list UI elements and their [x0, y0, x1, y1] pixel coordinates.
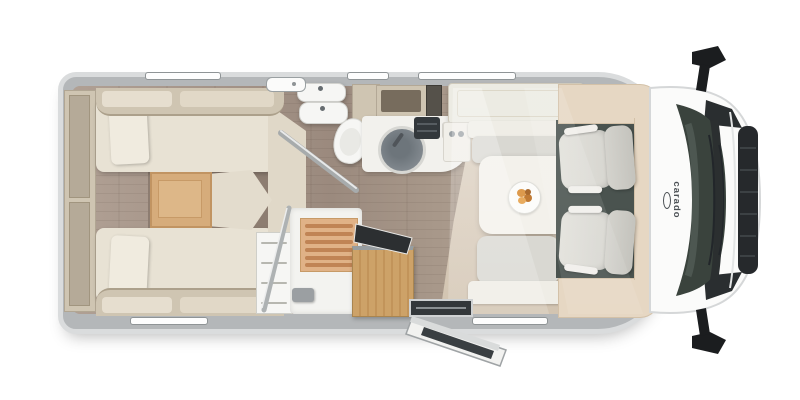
shower-glass-edge — [262, 208, 287, 308]
motorhome-floorplan: carado — [0, 0, 800, 400]
entry-cabinet-open-flap — [354, 224, 412, 254]
side-mirror-right — [692, 308, 726, 354]
shower-glass-wall — [264, 208, 289, 310]
brand-logo: carado — [658, 170, 686, 230]
side-mirror-left — [692, 46, 726, 92]
brand-logo-oval-icon — [663, 192, 671, 209]
bathroom-door-wall-edge — [281, 131, 356, 188]
bathroom-door-wall — [281, 133, 356, 190]
brand-logo-text: carado — [672, 181, 681, 218]
